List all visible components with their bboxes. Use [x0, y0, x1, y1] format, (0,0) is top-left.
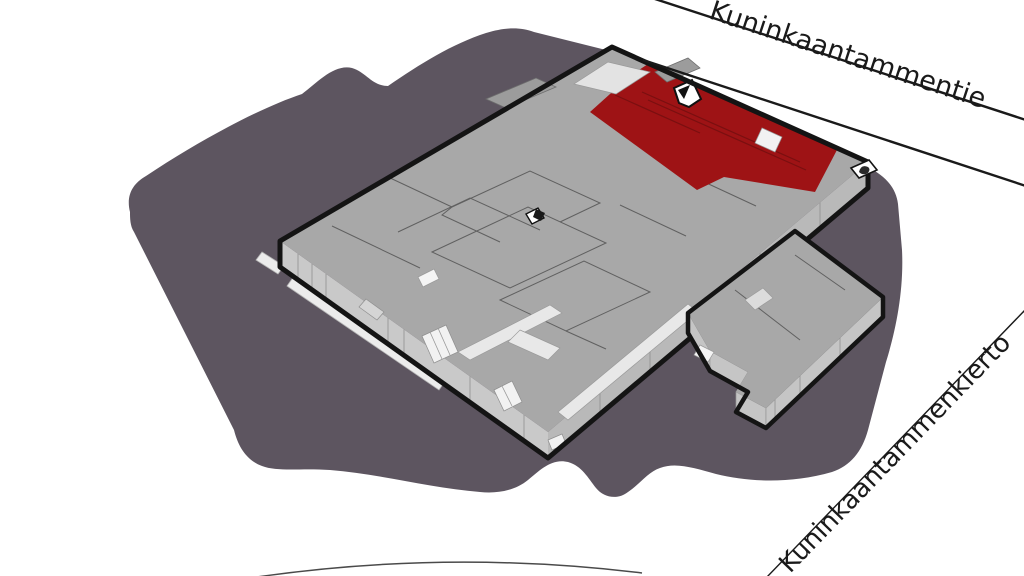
site-map-stage: Kuninkaantammentie Kuninkaantammenkierto [0, 0, 1024, 576]
site-map: Kuninkaantammentie Kuninkaantammenkierto [0, 0, 1024, 576]
road-curve [250, 562, 642, 576]
street-label-kuninkaantammentie: Kuninkaantammentie [706, 0, 990, 115]
